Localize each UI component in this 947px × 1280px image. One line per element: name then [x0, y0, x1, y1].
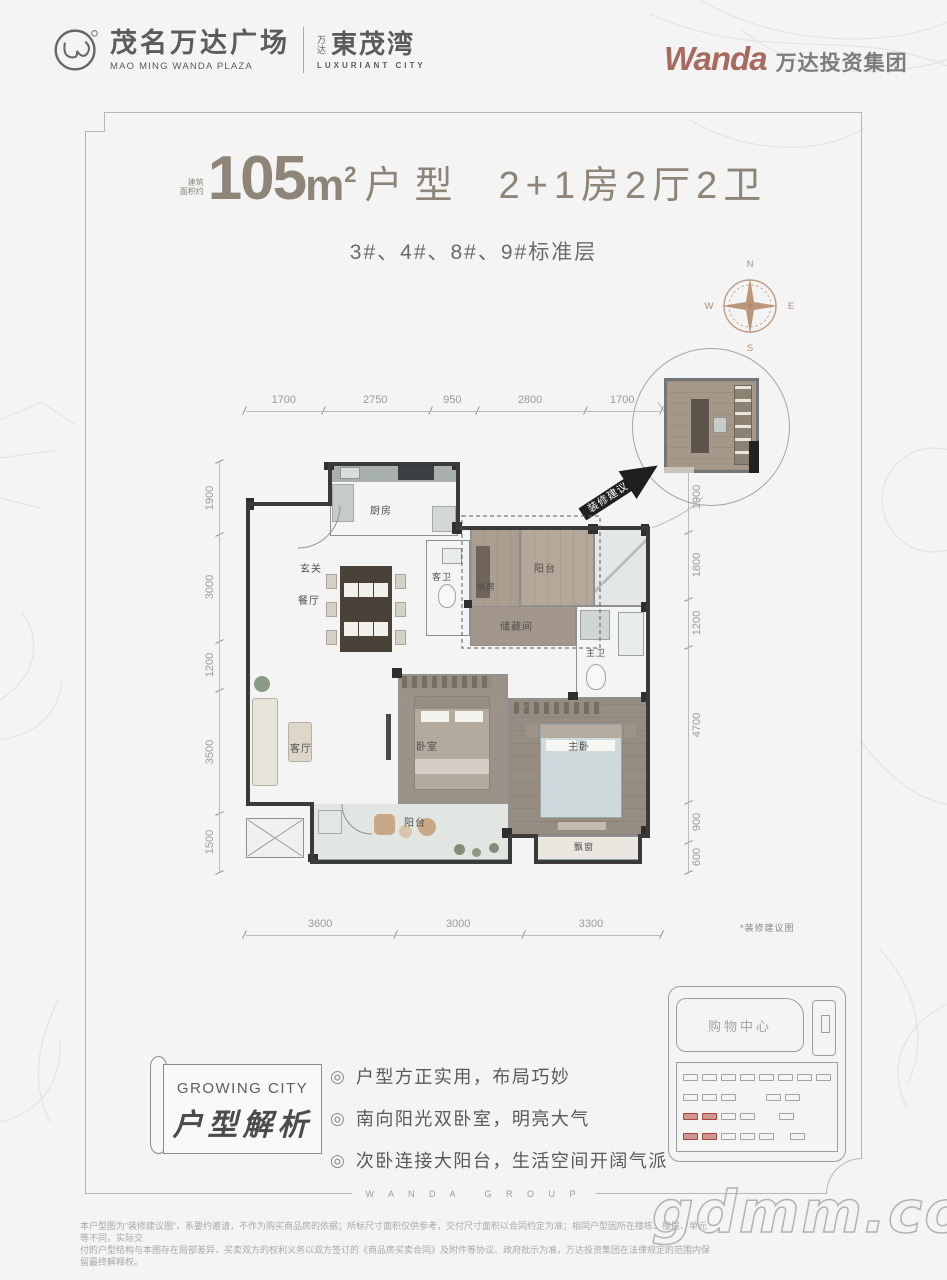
building-subtitle: 3#、4#、8#、9#标准层: [0, 236, 947, 266]
nightstand: [492, 696, 504, 709]
room-label-master-bedroom: 主卧: [568, 738, 590, 753]
dimension-label: 3600: [246, 918, 394, 936]
washbasin: [442, 548, 462, 564]
wardrobe: [402, 676, 492, 688]
kitchen-cabinet: [332, 484, 354, 522]
dimension-label: 1500: [205, 830, 217, 854]
bullet-icon: ◎: [330, 1110, 345, 1127]
compass-w-label: W: [705, 301, 714, 312]
selling-point: ◎ 户型方正实用，布局巧妙: [330, 1063, 670, 1089]
compass-icon: N E S W: [700, 254, 800, 354]
washer: [318, 810, 342, 834]
nightstand: [624, 724, 636, 737]
room-label-guest-bath: 客卫: [432, 570, 452, 583]
patio-chair: [374, 814, 395, 835]
dimensions-right: 1900 1800 1200 4700 900 600: [688, 462, 706, 872]
layout-label: 2+1房2厅2卫: [499, 167, 768, 205]
frame-footer-text: W A N D A G R O U P: [351, 1187, 595, 1200]
selling-point: ◎ 次卧连接大阳台，生活空间开阔气派: [330, 1147, 670, 1173]
floorplan: 厨房 玄关 餐厅 客卫 书房 阳台 储藏间 主卫 客厅 卧室 主卧 阳台 飘窗: [246, 462, 660, 872]
dimension-label: 3500: [205, 739, 217, 763]
room-label-kitchen: 厨房: [370, 502, 392, 517]
selling-point: ◎ 南向阳光双卧室，明亮大气: [330, 1105, 670, 1131]
tv-console: [386, 714, 391, 760]
inset-study-room: [664, 378, 759, 473]
wanda-group-cn: 万达投资集团: [776, 47, 908, 77]
dimensions-left: 1900 3000 1200 3500 1500: [202, 462, 220, 872]
room-balcony-top: [520, 528, 594, 606]
dimension-label: 1900: [205, 486, 217, 510]
dining-chair: [395, 602, 406, 617]
plant: [454, 844, 465, 855]
nightstand: [400, 696, 412, 709]
scroll-sheet: GROWING CITY 户型解析: [163, 1064, 322, 1154]
dimension-label: 1200: [205, 653, 217, 677]
plaza-emblem-icon: [52, 26, 100, 74]
site-side-building: [812, 1000, 836, 1056]
luxuriant-prefix: 万达: [317, 35, 328, 55]
dimension-label: 2800: [476, 394, 585, 412]
dimension-label: 1800: [692, 553, 704, 577]
sofa: [252, 698, 278, 786]
dimension-label: 4700: [692, 713, 704, 737]
room-label-entry: 玄关: [300, 560, 322, 575]
kitchen-sink: [340, 467, 360, 479]
room-label-balcony-bottom: 阳台: [404, 814, 426, 829]
toilet: [586, 664, 606, 690]
area-unit: m2: [305, 166, 356, 204]
compass-e-label: E: [788, 301, 794, 312]
room-label-balcony-top: 阳台: [534, 560, 556, 575]
dimension-label: 3300: [522, 918, 660, 936]
dining-chair: [395, 630, 406, 645]
room-label-study: 书房: [476, 580, 496, 593]
wardrobe: [514, 702, 602, 714]
selling-points: ◎ 户型方正实用，布局巧妙 ◎ 南向阳光双卧室，明亮大气 ◎ 次卧连接大阳台，生…: [330, 1063, 670, 1189]
residential-area: [676, 1062, 838, 1152]
banner-cn: 户型解析: [164, 1100, 321, 1144]
dimension-label: 600: [692, 848, 704, 866]
room-label-dining: 餐厅: [298, 592, 320, 607]
plant: [489, 843, 499, 853]
plant: [472, 848, 481, 857]
site-plan: 购物中心: [668, 986, 846, 1162]
dimension-label: 900: [692, 813, 704, 831]
analysis-banner: GROWING CITY 户型解析: [150, 1054, 322, 1164]
room-label-storage: 储藏间: [500, 618, 533, 633]
dining-chair: [395, 574, 406, 589]
toilet: [438, 584, 456, 608]
room-label-living: 客厅: [290, 740, 312, 755]
renovation-inset-circle: [632, 348, 790, 506]
renovation-note: *装修建议图: [740, 921, 795, 934]
dining-chair: [326, 602, 337, 617]
dimension-label: 3000: [205, 575, 217, 599]
shower: [580, 610, 610, 640]
disclaimer-line-1: 本户型图为“装修建议图”，系要约邀请，不作为购买商品房的依据；所标尺寸面积仅供参…: [80, 1220, 712, 1244]
bullet-icon: ◎: [330, 1152, 345, 1169]
type-label: 户型: [365, 167, 465, 205]
logo-wanda-group: Wanda 万达投资集团: [664, 40, 908, 78]
dimension-label: 1200: [692, 611, 704, 635]
logo-maoming-wanda-plaza: 茂名万达广场 MAO MING WANDA PLAZA 万达 東茂湾 LUXUR…: [52, 26, 426, 74]
shopping-mall: 购物中心: [676, 998, 804, 1052]
bench: [558, 822, 606, 830]
luxuriant-name-en: LUXURIANT CITY: [317, 61, 426, 70]
disclaimer: 本户型图为“装修建议图”，系要约邀请，不作为购买商品房的依据；所标尺寸面积仅供参…: [80, 1220, 712, 1268]
dimensions-top: 1700 2750 950 2800 1700: [246, 394, 660, 412]
ac-platform: [594, 528, 648, 606]
dining-table: [340, 566, 392, 652]
washbasin: [618, 612, 644, 656]
bullet-icon: ◎: [330, 1068, 345, 1085]
compass-s-label: S: [747, 343, 753, 354]
nightstand: [526, 724, 538, 737]
stove: [398, 466, 434, 480]
disclaimer-line-2: 付的户型结构与本图存在局部差异，买卖双方的权利义务以双方签订的《商品房买卖合同》…: [80, 1244, 712, 1268]
dimension-label: 950: [429, 394, 476, 412]
room-label-bay-window: 飘窗: [574, 840, 594, 853]
frame-corner-step: [85, 112, 105, 132]
room-label-bedroom: 卧室: [416, 738, 438, 753]
dimension-label: 1700: [246, 394, 322, 412]
plaza-name-cn: 茂名万达广场: [110, 28, 290, 58]
logo-divider: [303, 27, 304, 73]
watermark: gdmm.com: [652, 1178, 947, 1246]
room-label-master-bath: 主卫: [586, 646, 606, 659]
banner-en: GROWING CITY: [164, 1080, 321, 1097]
unit-title: 建筑 面积约 105 m2 户型 2+1房2厅2卫: [0, 154, 947, 205]
dimension-label: 2750: [322, 394, 429, 412]
area-prefix: 建筑 面积约: [180, 178, 204, 196]
wanda-wordmark: Wanda: [664, 40, 767, 78]
dimension-label: 3000: [394, 918, 522, 936]
poster-page: 茂名万达广场 MAO MING WANDA PLAZA 万达 東茂湾 LUXUR…: [0, 0, 947, 1280]
dimensions-bottom: 3600 3000 3300: [246, 918, 660, 936]
plaza-name-en: MAO MING WANDA PLAZA: [110, 61, 290, 72]
plant: [254, 676, 270, 692]
dining-chair: [326, 574, 337, 589]
luxuriant-name-cn: 東茂湾: [331, 30, 415, 58]
compass-n-label: N: [747, 259, 754, 270]
equipment-platform: [246, 818, 304, 858]
dining-chair: [326, 630, 337, 645]
area-number: 105: [208, 154, 305, 205]
